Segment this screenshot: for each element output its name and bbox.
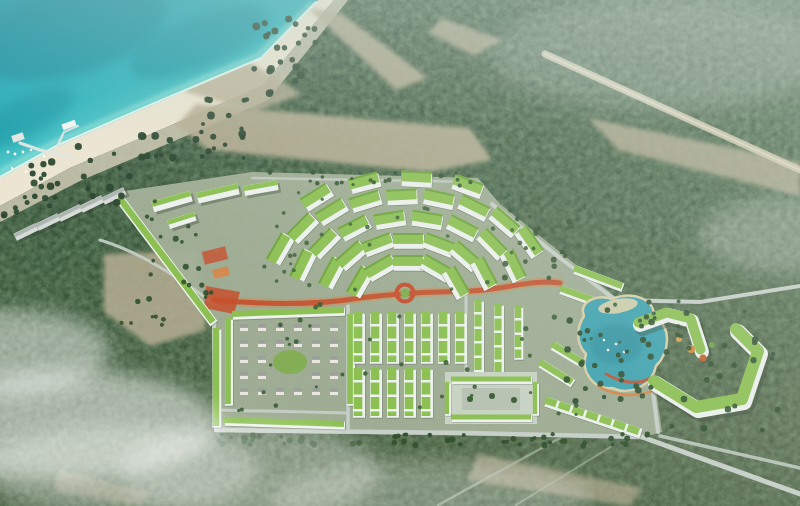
scene-svg [0,0,800,506]
corner-haze [0,0,800,506]
aerial-masterplan-render [0,0,800,506]
